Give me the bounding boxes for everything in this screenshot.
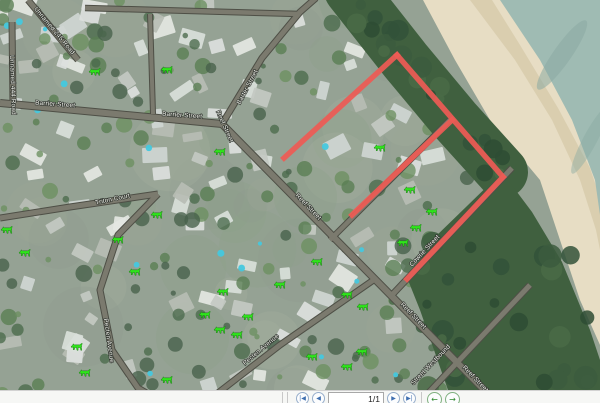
aerial-map[interactable]: Unnamed 245 RoadUnnamed 444 RoadBarrier …: [0, 0, 600, 403]
divider: [421, 392, 422, 403]
last-page-button[interactable]: ▶|: [403, 392, 416, 403]
toolbar-grip[interactable]: [282, 392, 288, 403]
next-page-button[interactable]: ▶: [387, 392, 400, 403]
map-viewer-window: Unnamed 245 RoadUnnamed 444 RoadBarrier …: [0, 0, 600, 403]
pager-bar: |◀ ◀ ▶ ▶| ← →: [0, 390, 600, 403]
prev-page-button[interactable]: ◀: [312, 392, 325, 403]
back-button[interactable]: ←: [427, 392, 442, 403]
pager-controls: |◀ ◀ ▶ ▶| ← →: [282, 392, 460, 403]
first-page-button[interactable]: |◀: [296, 392, 309, 403]
page-number-input[interactable]: [328, 392, 384, 403]
forward-button[interactable]: →: [445, 392, 460, 403]
